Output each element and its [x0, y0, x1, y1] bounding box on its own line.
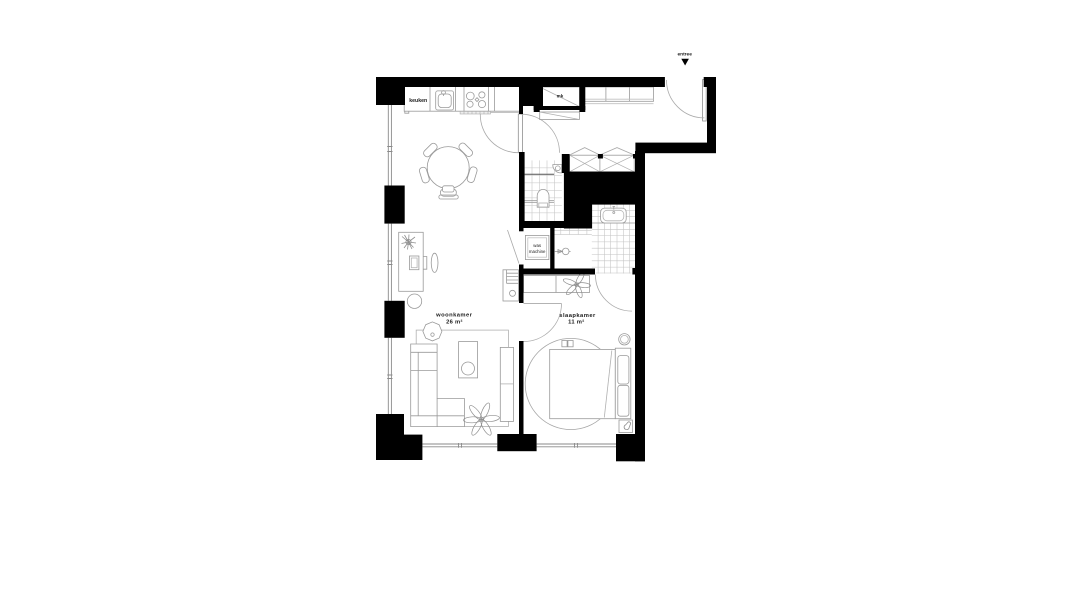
svg-text:26 m²: 26 m²: [446, 319, 463, 326]
svg-text:slaapkamer: slaapkamer: [559, 313, 596, 319]
svg-text:woonkamer: woonkamer: [435, 312, 473, 318]
svg-text:was: was: [533, 243, 542, 248]
svg-text:machine: machine: [529, 249, 546, 254]
svg-text:entree: entree: [677, 52, 692, 58]
svg-text:mk: mk: [557, 94, 564, 99]
svg-text:keuken: keuken: [409, 98, 427, 104]
svg-text:11 m²: 11 m²: [568, 319, 584, 326]
